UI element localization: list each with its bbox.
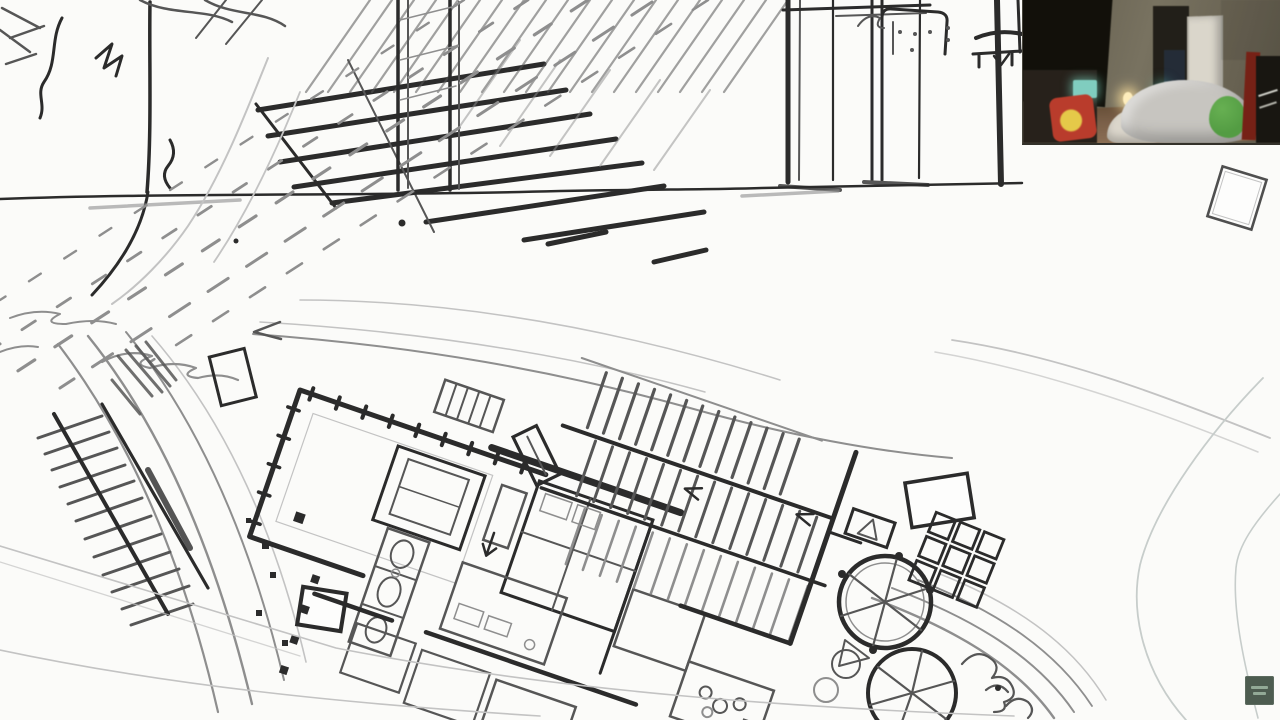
perspective-sketch <box>0 0 1022 352</box>
webcam-overlay <box>1022 0 1280 145</box>
watermark-text-line <box>1251 686 1268 689</box>
webcam-beanbag <box>1209 96 1246 138</box>
note-card <box>1207 166 1266 229</box>
tree-circle <box>838 552 934 654</box>
webcam-snack-bag <box>1048 93 1097 142</box>
webcam-right-shelf <box>1256 56 1280 143</box>
site-plan-sketch <box>38 300 1270 720</box>
watermark-badge[interactable] <box>1245 676 1274 705</box>
video-frame <box>0 0 1280 720</box>
webcam-scene <box>1023 0 1280 143</box>
watermark-text-line <box>1253 692 1266 695</box>
